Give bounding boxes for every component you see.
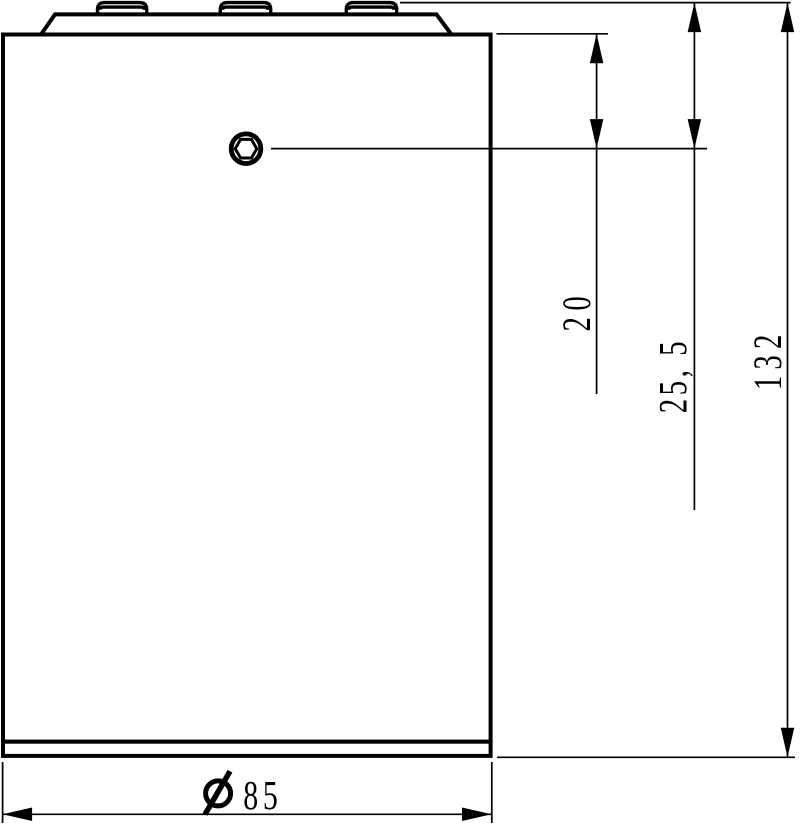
svg-text:85: 85 bbox=[243, 772, 282, 818]
svg-text:25, 5: 25, 5 bbox=[651, 338, 696, 414]
svg-text:132: 132 bbox=[745, 328, 790, 390]
svg-text:20: 20 bbox=[554, 290, 599, 332]
